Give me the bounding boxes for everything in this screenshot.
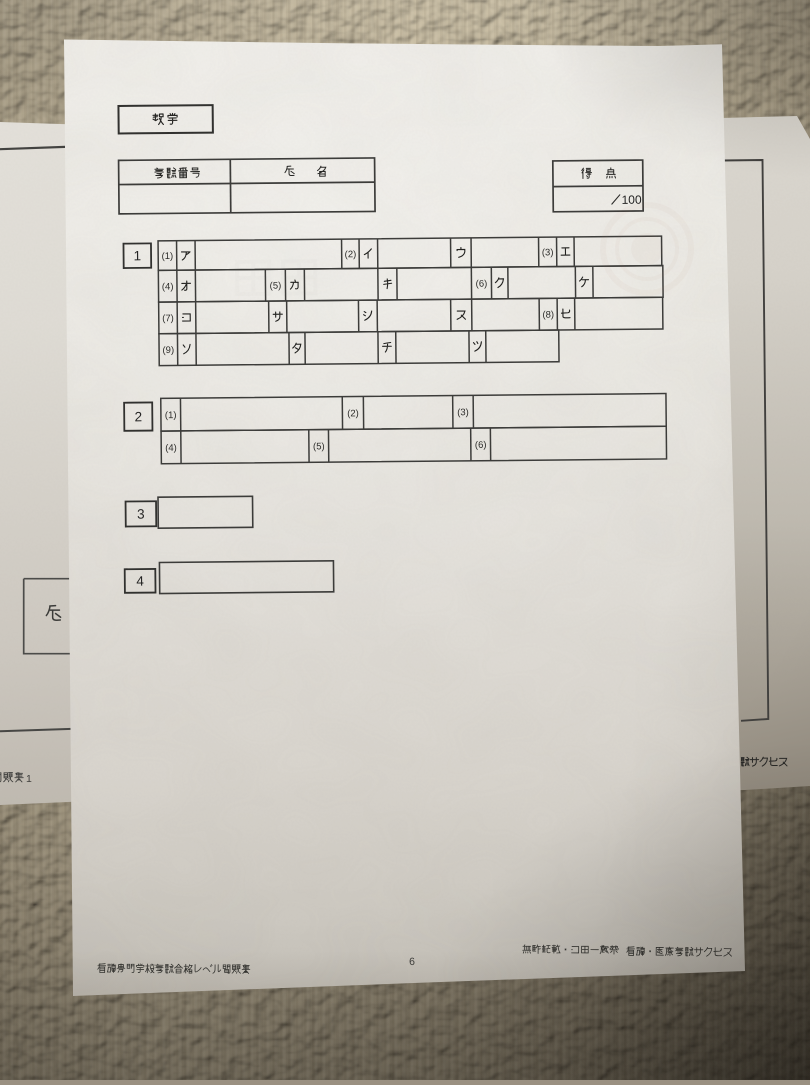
svg-text:(3): (3) [542, 247, 554, 258]
svg-text:(8): (8) [542, 310, 554, 321]
svg-text:(6): (6) [476, 279, 488, 290]
svg-text:(2): (2) [347, 408, 359, 419]
svg-text:4: 4 [136, 574, 144, 589]
svg-text:1: 1 [133, 248, 141, 263]
svg-text:6: 6 [409, 956, 415, 968]
svg-text:1: 1 [243, 965, 249, 976]
svg-text:(6): (6) [475, 440, 487, 451]
svg-text:(2): (2) [345, 249, 357, 260]
svg-text:(4): (4) [165, 443, 177, 454]
svg-text:(4): (4) [162, 282, 174, 293]
svg-text:(7): (7) [162, 313, 174, 324]
svg-text:3: 3 [137, 507, 145, 522]
svg-text:(9): (9) [162, 345, 174, 356]
svg-text:(5): (5) [313, 441, 325, 452]
svg-text:(1): (1) [162, 251, 174, 262]
svg-text:2: 2 [135, 409, 143, 424]
svg-text:(3): (3) [457, 407, 469, 418]
svg-text:(1): (1) [165, 410, 177, 421]
